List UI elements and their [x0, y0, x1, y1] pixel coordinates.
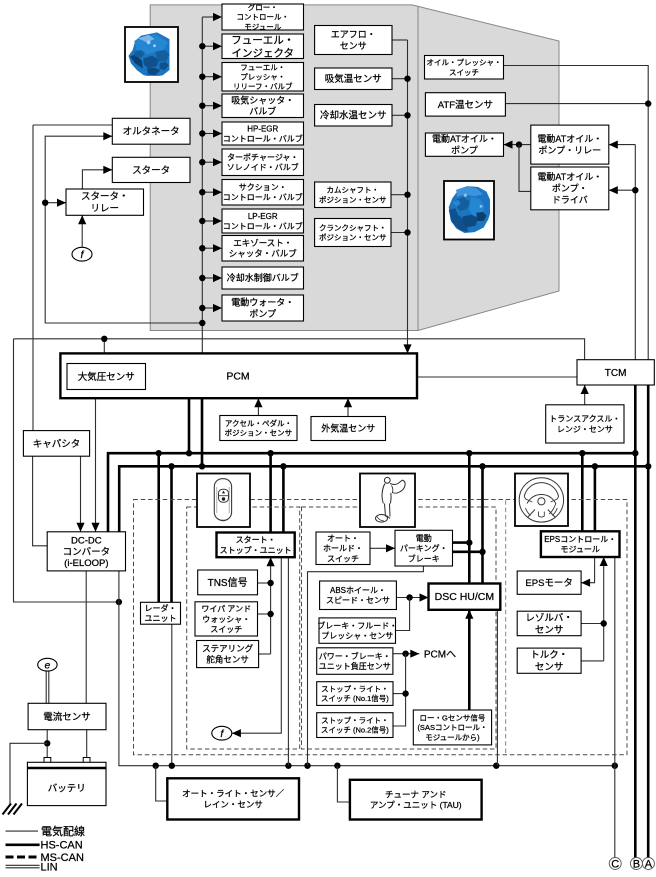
- svg-text:コントロール・: コントロール・: [237, 13, 290, 22]
- svg-text:チューナ アンド: チューナ アンド: [385, 789, 447, 799]
- svg-text:モジュール: モジュール: [560, 545, 599, 554]
- svg-text:トルク・: トルク・: [530, 650, 568, 661]
- svg-text:ターボチャージャ・: ターボチャージャ・: [227, 153, 298, 162]
- svg-text:トランスアクスル・: トランスアクスル・: [549, 415, 620, 424]
- svg-text:ポンプ: ポンプ: [451, 146, 478, 156]
- svg-text:アンプ・ユニット (TAU): アンプ・ユニット (TAU): [370, 800, 462, 810]
- svg-text:EPSモータ: EPSモータ: [525, 578, 573, 589]
- svg-text:ポンプ・リレー: ポンプ・リレー: [538, 146, 601, 156]
- svg-text:レイン・センサ: レイン・センサ: [203, 799, 263, 809]
- svg-text:センサ: センサ: [535, 662, 564, 673]
- svg-text:C: C: [611, 859, 619, 871]
- svg-text:e: e: [44, 659, 50, 671]
- svg-text:センサ: センサ: [535, 625, 564, 636]
- svg-text:コンバータ: コンバータ: [63, 547, 111, 558]
- svg-text:プレッシャ・: プレッシャ・: [240, 73, 285, 82]
- svg-text:アクセル・ペダル・: アクセル・ペダル・: [225, 418, 292, 428]
- svg-text:センサ: センサ: [340, 41, 367, 51]
- svg-text:LP-EGR: LP-EGR: [248, 212, 278, 221]
- svg-text:スタータ・: スタータ・: [81, 192, 129, 203]
- svg-text:ブレーキ・フルード・: ブレーキ・フルード・: [317, 620, 397, 630]
- svg-text:ポジション・センサ: ポジション・センサ: [319, 195, 387, 204]
- svg-text:(SASコントロール・: (SASコントロール・: [417, 723, 487, 732]
- svg-text:吸気シャッタ・: 吸気シャッタ・: [231, 94, 294, 105]
- svg-text:プレッシャ・センサ: プレッシャ・センサ: [321, 632, 393, 641]
- svg-text:エアフロ・: エアフロ・: [331, 30, 376, 40]
- svg-text:スイッチ: スイッチ: [449, 68, 479, 77]
- svg-text:吸気温センサ: 吸気温センサ: [325, 73, 382, 85]
- svg-text:ストップ・ライト・: ストップ・ライト・: [321, 716, 389, 725]
- svg-text:バルブ: バルブ: [249, 106, 276, 117]
- svg-text:TCM: TCM: [605, 368, 627, 379]
- svg-text:オイル・プレッシャ・: オイル・プレッシャ・: [427, 58, 502, 67]
- svg-text:レゾルバ・: レゾルバ・: [525, 613, 573, 624]
- svg-text:スイッチ (No.1信号): スイッチ (No.1信号): [321, 693, 389, 703]
- svg-text:カムシャフト・: カムシャフト・: [327, 186, 380, 195]
- svg-text:電気配線: 電気配線: [41, 824, 85, 838]
- svg-text:ステアリング: ステアリング: [202, 644, 254, 654]
- svg-text:LIN: LIN: [41, 862, 58, 874]
- svg-text:HS-CAN: HS-CAN: [41, 840, 83, 852]
- svg-text:スピード・センサ: スピード・センサ: [326, 596, 390, 605]
- svg-text:コントロール・バルブ: コントロール・バルブ: [223, 134, 303, 144]
- svg-text:フューエル・: フューエル・: [231, 34, 294, 46]
- svg-text:大気圧センサ: 大気圧センサ: [78, 371, 135, 383]
- svg-text:ユニット: ユニット: [145, 614, 177, 623]
- svg-text:ポンプ: ポンプ: [249, 309, 276, 319]
- svg-text:モジュールから): モジュールから): [425, 733, 480, 742]
- svg-text:ブレーキ: ブレーキ: [408, 553, 440, 563]
- svg-text:(i-ELOOP): (i-ELOOP): [64, 558, 108, 569]
- svg-text:コントロール・バルブ: コントロール・バルブ: [223, 221, 303, 231]
- svg-text:EPSコントロール・: EPSコントロール・: [544, 535, 616, 544]
- svg-text:TNS信号: TNS信号: [208, 577, 248, 589]
- svg-text:B: B: [633, 859, 640, 871]
- svg-text:電動ウォータ・: 電動ウォータ・: [231, 298, 294, 308]
- svg-text:ウォッシャ・: ウォッシャ・: [202, 615, 250, 624]
- svg-text:DSC HU/CM: DSC HU/CM: [435, 591, 495, 603]
- svg-text:ストップ・ライト・: ストップ・ライト・: [321, 684, 389, 693]
- svg-text:スイッチ: スイッチ: [210, 625, 242, 634]
- svg-text:レーダ・: レーダ・: [145, 603, 177, 613]
- svg-text:オート・ライト・センサ／: オート・ライト・センサ／: [182, 789, 285, 799]
- svg-text:モジュール: モジュール: [244, 22, 281, 31]
- svg-text:スイッチ (No.2信号): スイッチ (No.2信号): [321, 725, 389, 735]
- svg-text:グロー・: グロー・: [248, 2, 278, 12]
- svg-text:インジェクタ: インジェクタ: [231, 48, 294, 60]
- svg-text:DC-DC: DC-DC: [71, 535, 102, 546]
- svg-text:電動ATオイル・: 電動ATオイル・: [537, 134, 602, 144]
- svg-text:パワー・ブレーキ・: パワー・ブレーキ・: [319, 651, 391, 661]
- svg-text:ポジション・センサ: ポジション・センサ: [319, 233, 387, 242]
- svg-text:ユニット負圧センサ: ユニット負圧センサ: [319, 661, 391, 671]
- svg-text:電動ATオイル・: 電動ATオイル・: [432, 134, 497, 144]
- svg-text:ストップ・ユニット: ストップ・ユニット: [220, 546, 292, 555]
- svg-text:電動ATオイル・: 電動ATオイル・: [537, 172, 602, 182]
- svg-text:スタータ: スタータ: [132, 165, 170, 176]
- svg-text:舵角センサ: 舵角センサ: [206, 655, 249, 665]
- svg-text:外気温センサ: 外気温センサ: [321, 423, 375, 434]
- svg-text:シャッタ・バルブ: シャッタ・バルブ: [229, 249, 298, 259]
- svg-text:ドライバ: ドライバ: [552, 195, 588, 205]
- svg-text:A: A: [645, 859, 653, 871]
- svg-text:キャパシタ: キャパシタ: [33, 439, 81, 450]
- svg-text:エキゾースト・: エキゾースト・: [233, 238, 292, 248]
- svg-text:ソレノイド・バルブ: ソレノイド・バルブ: [227, 162, 299, 172]
- svg-text:スイッチ: スイッチ: [327, 554, 359, 563]
- svg-text:パーキング・: パーキング・: [400, 543, 448, 553]
- svg-text:バッテリ: バッテリ: [48, 784, 86, 795]
- svg-text:ATF温センサ: ATF温センサ: [438, 100, 493, 111]
- svg-text:ロー・Gセンサ信号: ロー・Gセンサ信号: [420, 713, 486, 723]
- svg-text:ホールド・: ホールド・: [323, 544, 363, 553]
- svg-text:電流センサ: 電流センサ: [43, 711, 91, 723]
- svg-text:電動: 電動: [416, 534, 432, 543]
- svg-text:冷却水温センサ: 冷却水温センサ: [320, 110, 387, 122]
- svg-text:リレー: リレー: [90, 204, 119, 215]
- svg-text:ワイパ アンド: ワイパ アンド: [201, 605, 251, 614]
- svg-text:PCMへ: PCMへ: [424, 650, 456, 661]
- svg-text:コントロール・バルブ: コントロール・バルブ: [223, 192, 303, 202]
- svg-text:オルタネータ: オルタネータ: [123, 127, 180, 138]
- svg-text:レンジ・センサ: レンジ・センサ: [557, 425, 613, 434]
- svg-text:ポンプ・: ポンプ・: [552, 184, 588, 194]
- svg-text:サクション・: サクション・: [239, 183, 287, 192]
- svg-text:リリーフ・バルブ: リリーフ・バルブ: [233, 81, 293, 91]
- svg-text:HP-EGR: HP-EGR: [247, 124, 278, 133]
- svg-text:クランクシャフト・: クランクシャフト・: [319, 223, 387, 232]
- svg-text:冷却水制御バルブ: 冷却水制御バルブ: [227, 272, 299, 283]
- svg-text:フューエル・: フューエル・: [240, 63, 285, 72]
- svg-text:スタート・: スタート・: [236, 536, 276, 545]
- svg-text:ポジション・センサ: ポジション・センサ: [225, 429, 293, 438]
- svg-text:ABSホイール・: ABSホイール・: [330, 586, 386, 595]
- svg-text:オート・: オート・: [327, 534, 359, 543]
- svg-text:PCM: PCM: [226, 370, 249, 382]
